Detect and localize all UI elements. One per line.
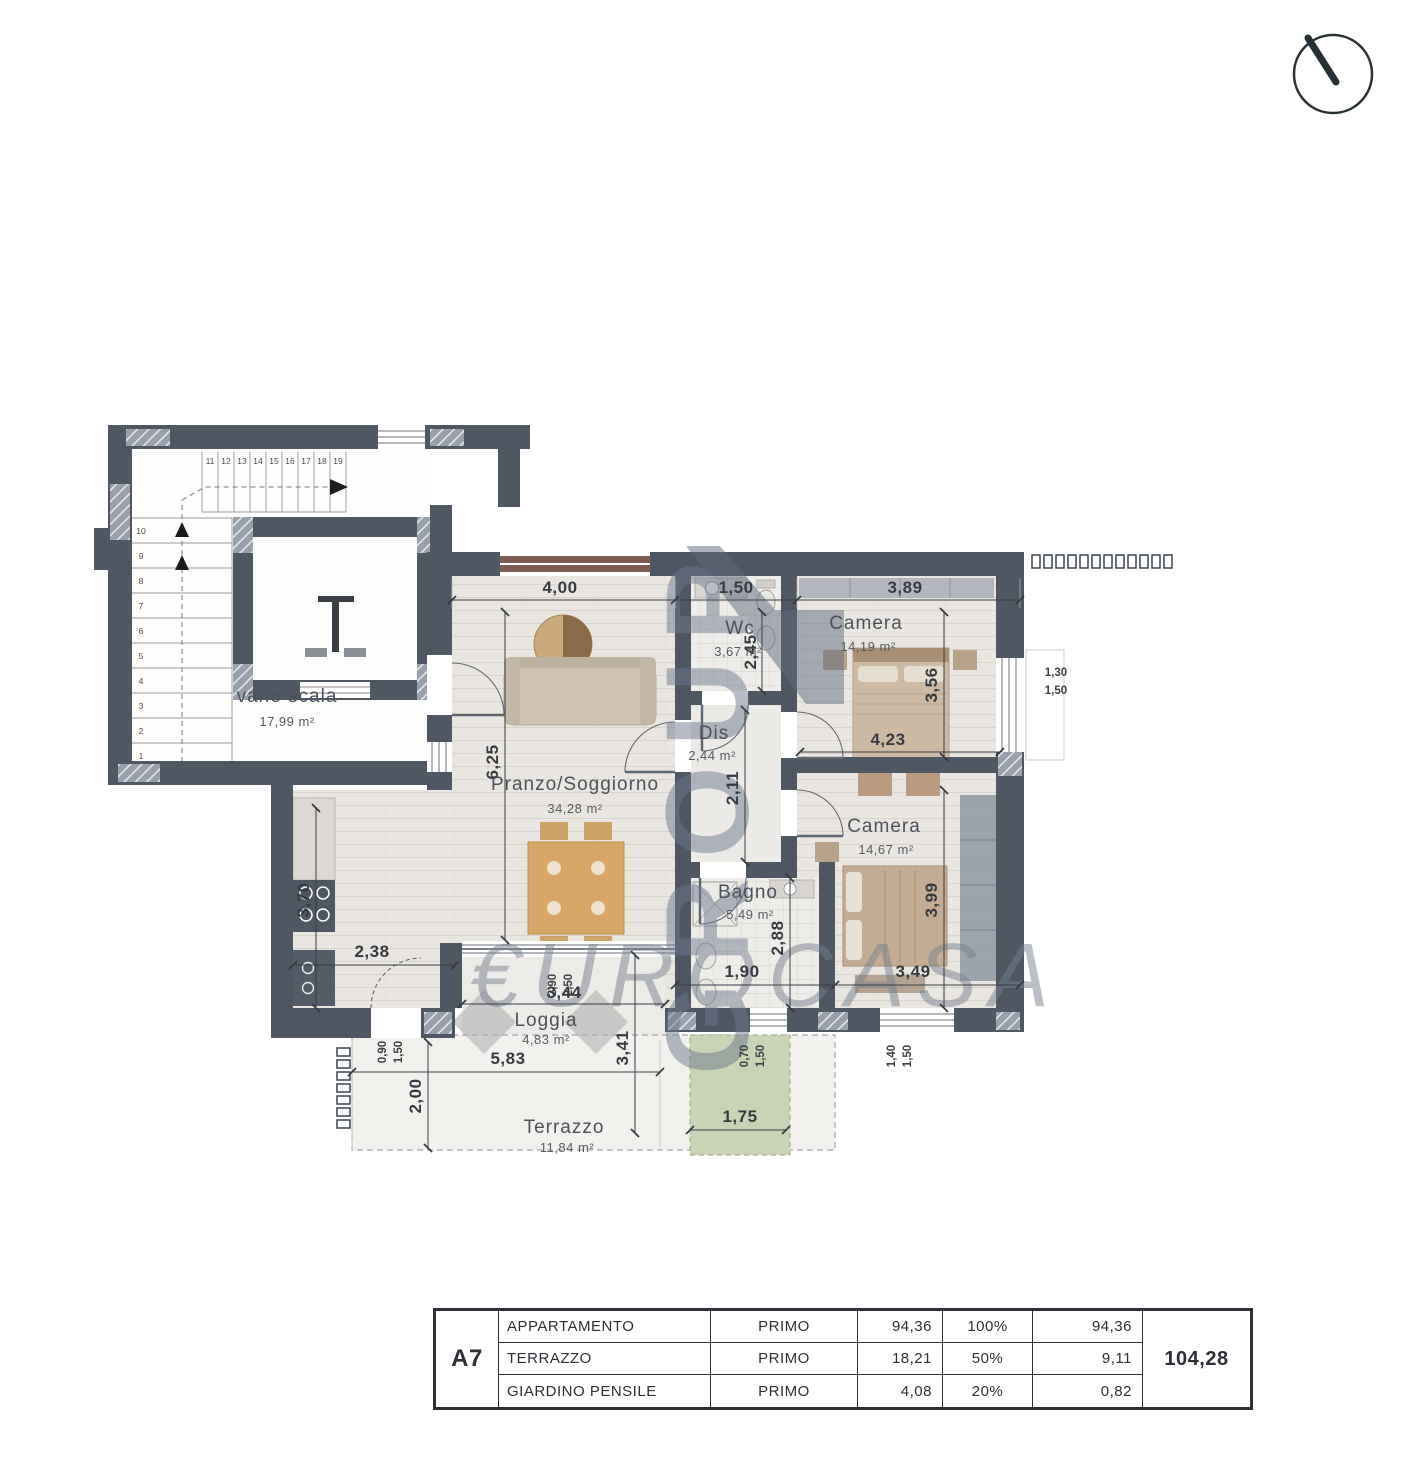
svg-text:1,30: 1,30: [1045, 667, 1067, 679]
opening-sw-door: [371, 1008, 421, 1038]
svg-text:13: 13: [237, 456, 247, 466]
room-label-bagno: Bagno: [718, 882, 778, 903]
table-row-area: 94,36: [858, 1311, 943, 1343]
svg-text:9: 9: [139, 551, 144, 561]
room-label-terrazzo: Terrazzo: [524, 1117, 605, 1138]
svg-text:5: 5: [139, 651, 144, 661]
stair-window: [378, 425, 425, 449]
svg-text:3,56: 3,56: [922, 667, 941, 702]
svg-text:14: 14: [253, 456, 263, 466]
room-area-vano-scala: 17,99 m²: [259, 714, 314, 729]
svg-text:2,11: 2,11: [723, 771, 742, 805]
sofa: [504, 657, 656, 725]
north-arrow-symbol: [1294, 35, 1372, 113]
window-pranzo-west-niche: [427, 742, 452, 772]
table-row-label: APPARTAMENTO: [499, 1311, 711, 1343]
svg-text:5,83: 5,83: [490, 1049, 525, 1068]
svg-text:3,70: 3,70: [294, 882, 313, 917]
svg-text:2,90: 2,90: [547, 974, 559, 996]
svg-text:2: 2: [139, 726, 144, 736]
room-area-dis: 2,44 m²: [688, 748, 736, 763]
svg-text:4: 4: [139, 676, 144, 686]
svg-text:4,23: 4,23: [870, 730, 905, 749]
table-row-value: 9,11: [1033, 1343, 1143, 1375]
svg-text:2,50: 2,50: [563, 974, 575, 996]
room-area-pranzo: 34,28 m²: [547, 801, 602, 816]
table-row-label: TERRAZZO: [499, 1343, 711, 1375]
svg-text:1: 1: [139, 751, 144, 761]
room-label-camera1: Camera: [829, 613, 903, 634]
unit-code: A7: [436, 1311, 499, 1407]
svg-text:8: 8: [139, 576, 144, 586]
floorplan-page: 11 12 13 14 15 16 17 18 19 10 9 8 7 6 5 …: [0, 0, 1407, 1452]
svg-text:3,89: 3,89: [887, 578, 922, 597]
opening-pranzo-entry: [427, 655, 452, 715]
window-pranzo-top: [500, 556, 650, 572]
svg-text:7: 7: [139, 601, 144, 611]
table-row-pct: 20%: [943, 1375, 1033, 1407]
table-row-pct: 100%: [943, 1311, 1033, 1343]
svg-text:16: 16: [285, 456, 295, 466]
svg-text:2,00: 2,00: [406, 1078, 425, 1113]
svg-text:17: 17: [301, 456, 311, 466]
svg-text:6,25: 6,25: [483, 744, 502, 779]
svg-text:10: 10: [136, 526, 146, 536]
areas-table: A7 APPARTAMENTO PRIMO 94,36 100% 94,36 T…: [433, 1308, 1253, 1410]
table-row-value: 94,36: [1033, 1311, 1143, 1343]
svg-text:3,49: 3,49: [895, 962, 930, 981]
svg-text:3,41: 3,41: [613, 1030, 632, 1065]
svg-text:4,00: 4,00: [542, 578, 577, 597]
svg-text:11: 11: [206, 456, 215, 466]
svg-text:1,40: 1,40: [886, 1045, 898, 1067]
svg-text:12: 12: [221, 456, 231, 466]
svg-text:2,38: 2,38: [354, 942, 389, 961]
table-row-value: 0,82: [1033, 1375, 1143, 1407]
table-row-label: GIARDINO PENSILE: [499, 1375, 711, 1407]
svg-text:1,75: 1,75: [722, 1107, 757, 1126]
svg-text:1,50: 1,50: [902, 1045, 914, 1067]
table-row-area: 4,08: [858, 1375, 943, 1407]
room-label-camera2: Camera: [847, 816, 921, 837]
svg-text:1,90: 1,90: [724, 962, 759, 981]
floor-plan-drawing: 11 12 13 14 15 16 17 18 19 10 9 8 7 6 5 …: [0, 0, 1407, 1452]
table-row-floor: PRIMO: [711, 1311, 858, 1343]
svg-text:2,45: 2,45: [741, 634, 760, 669]
table-row-floor: PRIMO: [711, 1375, 858, 1407]
room-label-vano-scala: vano scala: [237, 686, 338, 707]
total-area: 104,28: [1143, 1311, 1250, 1407]
svg-text:1,50: 1,50: [393, 1041, 405, 1063]
svg-text:18: 18: [317, 456, 327, 466]
room-area-loggia: 4,83 m²: [522, 1032, 570, 1047]
room-area-terrazzo: 11,84 m²: [540, 1140, 595, 1155]
svg-text:0,90: 0,90: [377, 1041, 389, 1063]
room-label-loggia: Loggia: [514, 1010, 577, 1031]
svg-text:6: 6: [139, 626, 144, 636]
svg-text:0,70: 0,70: [739, 1045, 751, 1067]
svg-text:3,99: 3,99: [922, 882, 941, 917]
room-area-camera1: 14,19 m²: [840, 639, 895, 654]
svg-text:19: 19: [333, 456, 343, 466]
room-label-dis: Dis: [699, 723, 729, 744]
svg-text:1,50: 1,50: [755, 1045, 767, 1067]
svg-text:2,88: 2,88: [768, 920, 787, 955]
svg-text:1,50: 1,50: [1045, 685, 1067, 697]
table-row-floor: PRIMO: [711, 1343, 858, 1375]
table-row-area: 18,21: [858, 1343, 943, 1375]
room-area-bagno: 5,49 m²: [726, 907, 774, 922]
svg-text:1,50: 1,50: [718, 578, 753, 597]
table-row-pct: 50%: [943, 1343, 1033, 1375]
room-area-camera2: 14,67 m²: [858, 842, 913, 857]
svg-text:15: 15: [269, 456, 279, 466]
room-label-pranzo: Pranzo/Soggiorno: [491, 774, 659, 795]
svg-text:3: 3: [139, 701, 144, 711]
